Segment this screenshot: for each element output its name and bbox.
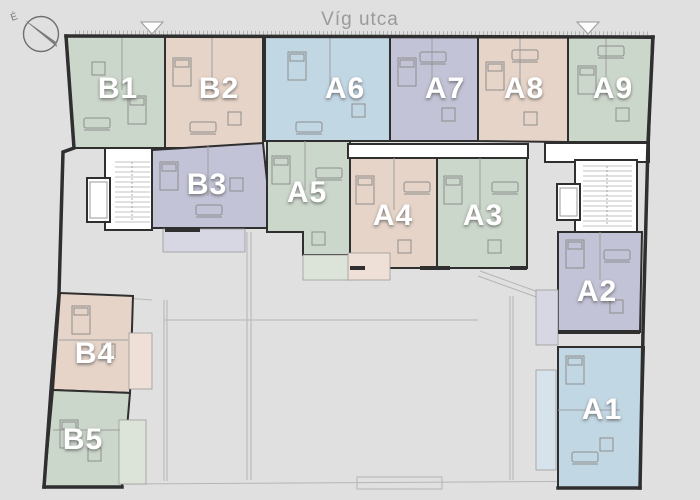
label-A9[interactable]: A9	[593, 72, 633, 105]
balcony-A5	[303, 255, 352, 280]
label-A7[interactable]: A7	[425, 72, 465, 105]
label-A8[interactable]: A8	[504, 72, 544, 105]
label-A6[interactable]: A6	[325, 72, 365, 105]
label-A5[interactable]: A5	[287, 176, 327, 209]
label-B3[interactable]: B3	[187, 168, 227, 201]
label-B5[interactable]: B5	[63, 423, 103, 456]
label-A3[interactable]: A3	[463, 199, 503, 232]
label-A2[interactable]: A2	[577, 275, 617, 308]
balcony-B3	[163, 229, 245, 252]
stairwell-left	[105, 148, 152, 230]
corridor-top	[348, 144, 528, 158]
balcony-B5	[119, 420, 146, 484]
label-B4[interactable]: B4	[75, 337, 115, 370]
balcony-A1	[536, 370, 556, 470]
label-B1[interactable]: B1	[98, 72, 138, 105]
balcony-B4	[129, 333, 152, 389]
label-A1[interactable]: A1	[582, 393, 622, 426]
label-A4[interactable]: A4	[373, 199, 413, 232]
floor-plan: Víg utca	[0, 0, 700, 500]
label-B2[interactable]: B2	[199, 72, 239, 105]
street-name: Víg utca	[321, 9, 399, 30]
balcony-A2	[536, 290, 558, 345]
